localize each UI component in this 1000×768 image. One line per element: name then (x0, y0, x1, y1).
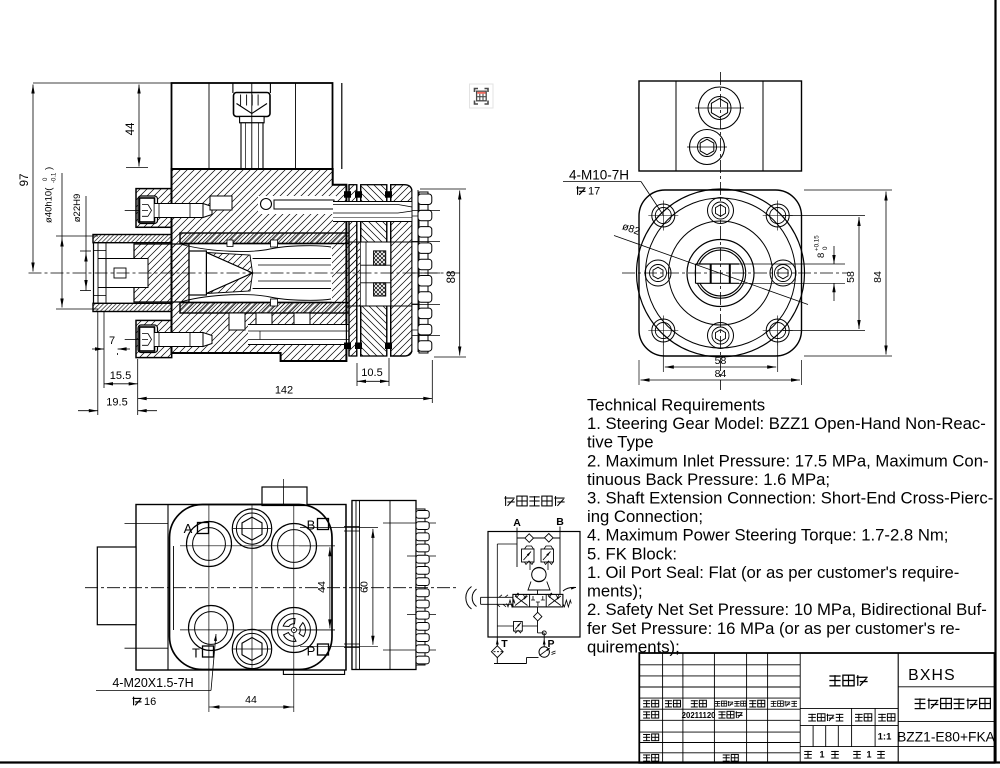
svg-text:tive Type: tive Type (587, 433, 653, 452)
svg-text:58: 58 (845, 271, 857, 283)
svg-text:1: 1 (866, 750, 871, 760)
svg-text:97: 97 (19, 174, 31, 187)
svg-text:B: B (307, 518, 316, 533)
svg-text:-0.1: -0.1 (52, 172, 58, 183)
svg-text:58: 58 (715, 355, 727, 367)
svg-text:1:1: 1:1 (878, 732, 892, 743)
svg-text:T: T (192, 646, 200, 661)
svg-text:4. Maximum Power Steering Torq: 4. Maximum Power Steering Torque: 1.7-2.… (587, 526, 948, 545)
svg-text:A: A (513, 517, 521, 529)
svg-text:ø40h10(: ø40h10( (44, 187, 55, 223)
svg-text:1. Steering Gear Model: BZZ1 O: 1. Steering Gear Model: BZZ1 Open-Hand N… (587, 414, 986, 433)
svg-text:+0.15: +0.15 (814, 235, 821, 251)
svg-text:142: 142 (275, 385, 293, 397)
svg-text:19.5: 19.5 (106, 397, 127, 409)
svg-text:44: 44 (316, 581, 328, 593)
svg-text:60: 60 (359, 581, 371, 593)
svg-text:fer Set Pressure: 16 MPa (or a: fer Set Pressure: 16 MPa (or as per cust… (587, 619, 960, 638)
svg-text:Technical Requirements: Technical Requirements (587, 395, 765, 414)
svg-text:5. FK Block:: 5. FK Block: (587, 544, 677, 563)
svg-text:ø22H9: ø22H9 (72, 194, 83, 223)
svg-text:2. Maximum Inlet Pressure: 17.: 2. Maximum Inlet Pressure: 17.5 MPa, Max… (587, 451, 989, 470)
svg-text:15.5: 15.5 (110, 370, 131, 382)
svg-text:BXHS: BXHS (908, 667, 956, 684)
svg-text:ing Connection;: ing Connection; (587, 507, 703, 526)
svg-text:BZZ1-E80+FKA: BZZ1-E80+FKA (897, 730, 996, 745)
svg-text:0: 0 (43, 177, 49, 181)
svg-text:84: 84 (715, 368, 727, 380)
svg-text:0: 0 (822, 246, 829, 250)
svg-text:3. Shaft Extension Connection:: 3. Shaft Extension Connection: Short-End… (587, 489, 993, 508)
svg-text:20211120: 20211120 (682, 711, 716, 720)
svg-text:P: P (547, 638, 554, 650)
svg-text:2. Safety Net Set Pressure: 10: 2. Safety Net Set Pressure: 10 MPa, Bidi… (587, 600, 987, 619)
svg-text:4-M10-7H: 4-M10-7H (569, 168, 629, 183)
svg-text:84: 84 (872, 271, 884, 283)
svg-text:ments);: ments); (587, 582, 643, 601)
svg-text:1: 1 (819, 750, 824, 760)
svg-text:88: 88 (446, 271, 458, 284)
svg-text:P: P (307, 644, 316, 659)
svg-text:4-M20X1.5-7H: 4-M20X1.5-7H (112, 676, 193, 690)
svg-text:A: A (184, 521, 193, 536)
svg-text:10.5: 10.5 (361, 367, 382, 379)
svg-text:44: 44 (125, 122, 137, 135)
svg-text:44: 44 (245, 694, 257, 706)
svg-text:): ) (44, 167, 55, 170)
svg-text:1. Oil Port Seal: Flat (or as: 1. Oil Port Seal: Flat (or as per custom… (587, 563, 959, 582)
svg-text:8: 8 (816, 253, 827, 258)
svg-text:tinuous Back Pressure: 1.6 MPa: tinuous Back Pressure: 1.6 MPa; (587, 470, 830, 489)
svg-text:17: 17 (588, 186, 600, 198)
svg-text:B: B (556, 516, 564, 528)
svg-text:T: T (501, 638, 508, 650)
svg-text:7: 7 (109, 335, 115, 347)
svg-text:16: 16 (144, 696, 156, 708)
